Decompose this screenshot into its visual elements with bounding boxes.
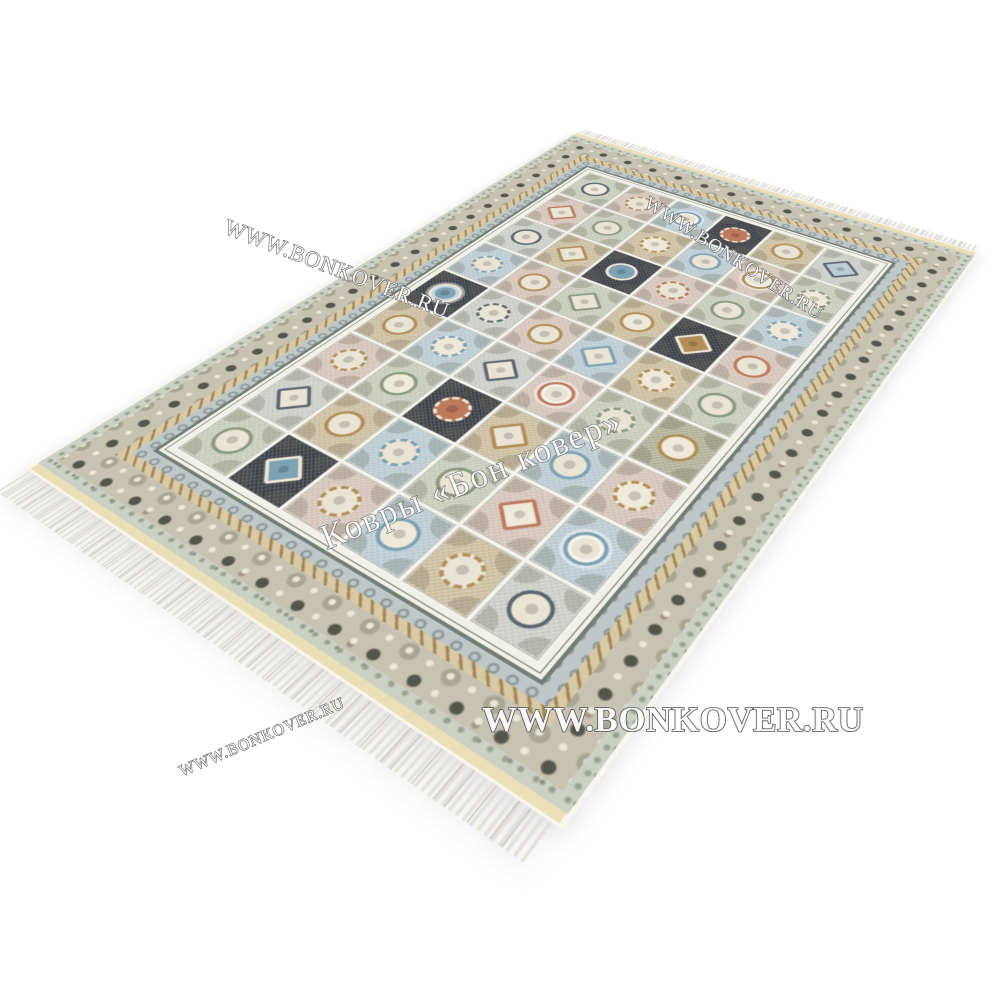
rug-tile-medallion (316, 407, 373, 443)
rug-tile-medallion (322, 345, 375, 376)
rug-tile-medallion (423, 332, 474, 362)
rug-tile-medallion (575, 180, 615, 199)
product-photo: WWW.BONKOVER.RU WWW.BONKOVER.RU Ковры «Б… (0, 0, 1000, 1000)
rug-tile-medallion (483, 359, 519, 381)
rug-tile-medallion (276, 386, 311, 410)
rug-tile-medallion (630, 364, 682, 396)
rug-tile-medallion (613, 308, 661, 336)
rug-tile-medallion (580, 346, 617, 368)
rug-tile-medallion (498, 499, 541, 531)
rug-tile-medallion (512, 270, 558, 295)
rug-tile-medallion (370, 434, 428, 472)
rug-tile-medallion (822, 261, 859, 278)
rug-tile-medallion (265, 455, 303, 484)
rug-tile-medallion (691, 388, 744, 422)
rug-tile-medallion (529, 378, 582, 411)
rug-tile-medallion (469, 300, 517, 327)
rug-tile-medallion (374, 311, 424, 339)
rug-tile-medallion (430, 546, 496, 595)
watermark-bottom-left: WWW.BONKOVER.RU (177, 695, 348, 781)
rug-tile-medallion (761, 317, 808, 345)
rug-tile-medallion (650, 278, 696, 303)
rug-tile-medallion (425, 392, 480, 427)
rug-tile-medallion (599, 260, 644, 284)
rug-tile-medallion (504, 226, 547, 248)
rug-tile-medallion (634, 233, 677, 255)
rug-tile-medallion (586, 218, 628, 239)
rug-tile-medallion (557, 246, 589, 262)
rug-tile-medallion (727, 351, 777, 382)
rug-tile-medallion (650, 429, 706, 467)
watermark-bottom-center: WWW.BONKOVER.RU (482, 700, 864, 740)
rug-tile-medallion (520, 320, 569, 349)
rug-tile-medallion (465, 252, 510, 276)
rug-tile-medallion (547, 205, 577, 219)
rug-tile-medallion (674, 333, 713, 354)
rug-tile-medallion (605, 475, 664, 517)
rug-tile-medallion (372, 368, 426, 401)
rug-tile-medallion (497, 583, 565, 636)
rug-tile-medallion (704, 297, 750, 324)
rug-tile-medallion (568, 292, 603, 311)
rug-tile-medallion (554, 526, 617, 573)
rug-tile-medallion (203, 422, 262, 459)
rug-tile-medallion (765, 241, 807, 264)
